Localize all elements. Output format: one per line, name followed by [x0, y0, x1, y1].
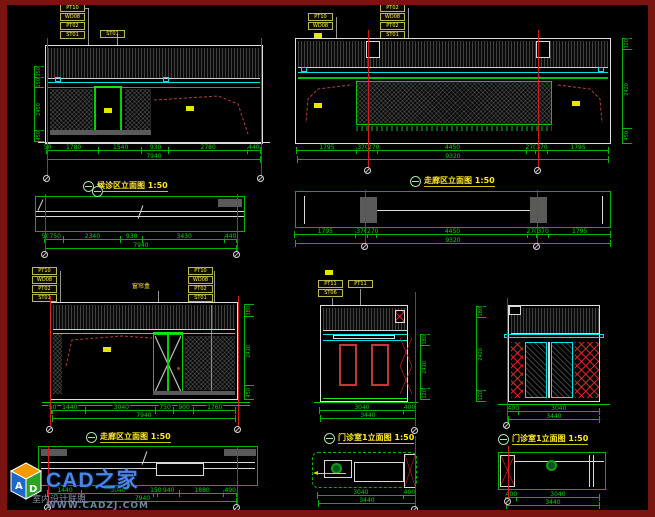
watermark-url: WWW.CADZJ.COM	[46, 501, 149, 511]
wall-line	[377, 210, 530, 211]
swing-arrow	[316, 473, 346, 474]
elevation-frame	[320, 305, 408, 402]
finish-tag: PT02	[60, 22, 85, 30]
view-title: 门诊室1立面图 1:50	[324, 433, 414, 444]
grid-bubble	[46, 426, 53, 433]
mullion	[548, 342, 550, 398]
curtain-box-label: 窗帘盒	[132, 284, 150, 290]
vertical-dim-chain: 350 150 2450 450	[34, 66, 44, 142]
door-head	[94, 86, 122, 88]
end-cap	[304, 196, 305, 224]
dim-total: 3440	[506, 502, 600, 509]
curtain-dashed-outline	[554, 79, 608, 125]
floor-line	[38, 142, 270, 143]
grid-bubble	[234, 426, 241, 433]
grid-bubble	[41, 251, 48, 258]
finish-tag: PT02	[188, 285, 213, 293]
finish-tag: PT02	[380, 4, 405, 12]
column-line	[593, 455, 594, 487]
grid-line	[237, 194, 238, 251]
finish-tag-stack: PT10 WD08 PT02 ST01	[188, 267, 213, 302]
finish-tag: PT10	[32, 267, 57, 275]
plant-symbol	[546, 460, 557, 471]
skirting-band	[50, 130, 151, 135]
grid-line	[415, 292, 416, 426]
view-room1-plan-b: 400 3040 3440	[470, 448, 630, 510]
view-waiting-area-plan: 50 750 2340 930 3430 440 7940	[28, 192, 298, 264]
pier-hatch	[53, 334, 62, 394]
cad-drawing-canvas[interactable]: PT10 WD08 PT02 ST01 ST01	[0, 0, 655, 517]
plan-outline	[498, 452, 606, 490]
grid-line	[507, 298, 508, 422]
door-leaf-hatch	[551, 342, 573, 398]
dim-total: 7940	[47, 156, 261, 163]
ledge-trim	[323, 340, 407, 341]
curtain-dashed-outline	[300, 79, 354, 125]
dim-total: 3440	[318, 500, 416, 507]
side-panel-hatch	[575, 342, 599, 398]
shelf-detail	[333, 335, 395, 339]
finish-tag: PT11	[318, 280, 343, 288]
door-head	[153, 332, 183, 334]
cove-detail	[163, 77, 169, 82]
dim-total: 9320	[295, 240, 611, 247]
grid-line	[50, 296, 51, 426]
cove-detail	[301, 67, 307, 72]
swing-arrow-head	[313, 471, 318, 475]
canopy-trim	[504, 334, 604, 338]
finish-tag: WD08	[188, 276, 213, 284]
grid-bubble	[43, 175, 50, 182]
detail-bubble-icon	[324, 433, 335, 444]
label-blob	[104, 108, 112, 113]
skirting-dots	[356, 126, 552, 131]
finish-tag: PT10	[60, 4, 85, 12]
counter	[354, 462, 404, 482]
door-pocket-brace	[405, 455, 415, 486]
grid-line	[45, 194, 46, 251]
view-corridor-plan: 1795 370 270 4450 270 370 1795 9320	[292, 188, 648, 260]
finish-tag-stack: PT10 WD08	[308, 13, 333, 30]
pier-fill	[41, 449, 67, 456]
elevation-frame	[45, 45, 263, 144]
door-stile	[167, 335, 169, 393]
view-title: 走廊区立面图 1:50	[86, 432, 171, 443]
finish-tag: ST01	[188, 294, 213, 302]
detail-bubble-icon	[498, 434, 509, 445]
column-fill	[530, 197, 547, 223]
ceiling-hatch	[298, 41, 608, 68]
door-leaf-hatch	[525, 342, 547, 398]
view-room1-plan-a: 3040 400 3440	[300, 448, 430, 514]
plan-outline	[295, 191, 611, 228]
wall-hatch	[185, 336, 235, 390]
curtain-dashed-outline	[152, 90, 260, 136]
view-title: 走廊区立面图 1:50	[410, 176, 495, 187]
door-jamb	[120, 86, 122, 132]
side-panel-hatch	[511, 342, 523, 398]
watermark: A D CAD之家 室内设计联盟 WWW.CADZJ.COM	[8, 456, 178, 516]
view-corridor2-elevation: PT10 WD08 PT02 ST01 PT10 WD08 PT02 ST01 …	[28, 264, 288, 447]
grid-bubble	[361, 243, 368, 250]
ceiling-hatch	[48, 48, 260, 79]
column-fill	[360, 197, 377, 223]
door-panel	[339, 344, 357, 386]
door-jamb	[94, 86, 96, 132]
grid-line	[365, 190, 366, 243]
grid-bubble	[233, 251, 240, 258]
finish-tag-stack: PT10 WD08 PT02 ST01	[32, 267, 57, 302]
finish-tag: PT10	[188, 267, 213, 275]
grid-bubble	[364, 167, 371, 174]
leader-line	[85, 8, 89, 9]
wall-panel-hatch	[356, 81, 552, 125]
pier-fill	[218, 199, 242, 207]
end-detail	[38, 199, 44, 210]
finish-tag: PT02	[32, 285, 57, 293]
vertical-dim-chain: 180 2420 120	[420, 334, 430, 400]
grid-line	[238, 296, 239, 426]
label-blob	[572, 101, 580, 106]
wall-hatch	[125, 89, 151, 131]
view-room1-elevation-b: 180 2420 120 400 3040 3440 门诊室1立面图 1:50	[470, 278, 648, 448]
tag-leader-through	[211, 305, 212, 391]
ground-line	[314, 402, 418, 403]
vertical-dim-chain: 320 2420 450	[622, 38, 632, 144]
base-line	[323, 398, 407, 399]
finish-tag: ST06	[318, 289, 343, 297]
label-blob	[314, 103, 322, 108]
view-corridor-elevation: PT10 WD08 PT02 WD08 PT02 ST01	[292, 2, 648, 192]
finish-tag: ST01	[32, 294, 57, 302]
grid-bubble	[233, 504, 240, 511]
finish-tag: PT11	[348, 280, 373, 288]
finish-tag: WD08	[308, 22, 333, 30]
end-cap	[602, 196, 603, 224]
column-line	[589, 455, 590, 487]
grid-line	[368, 30, 369, 168]
elevation-frame	[50, 302, 238, 400]
detail-bubble-icon	[86, 432, 97, 443]
wall-line	[36, 216, 244, 217]
cove-detail	[598, 67, 604, 72]
grid-bubble	[504, 498, 511, 505]
dim-total: 3440	[320, 415, 416, 422]
ceiling-hatch	[511, 308, 599, 334]
grid-bubble	[257, 175, 264, 182]
ceiling-trim	[48, 82, 260, 83]
view-title: 门诊室1立面图 1:50	[498, 434, 588, 445]
dim-total: 9320	[297, 156, 609, 163]
skirting-band	[153, 391, 235, 395]
plan-outline	[35, 196, 245, 232]
finish-tag-stack: PT11 ST06	[318, 280, 343, 297]
vertical-dim-chain: 380 2420 450	[244, 304, 254, 400]
vertical-dim-chain: 180 2420 120	[476, 306, 486, 402]
grid-bubble	[503, 422, 510, 429]
dim-total: 3440	[508, 416, 600, 423]
wall-hatch	[50, 89, 93, 131]
elevation-frame	[508, 305, 600, 402]
grid-line	[237, 446, 238, 504]
door-handle	[177, 367, 180, 370]
ceiling-hatch	[53, 305, 235, 330]
grid-bubble	[533, 243, 540, 250]
label-blob	[103, 347, 111, 352]
side-brace	[400, 338, 412, 366]
pier-fill	[224, 449, 256, 456]
detail-bubble-icon	[410, 176, 421, 187]
label-blob	[325, 270, 333, 275]
corner-notch-hatch	[395, 310, 405, 323]
curtain-dashed-outline	[62, 332, 154, 394]
door-panel	[371, 344, 389, 386]
grid-line	[538, 30, 539, 168]
finish-tag: ST01	[60, 31, 85, 39]
finish-tag: WD08	[60, 13, 85, 21]
dim-total: 7940	[45, 245, 237, 252]
label-blob	[186, 106, 194, 111]
side-brace	[400, 366, 412, 394]
grid-line	[508, 446, 509, 498]
watermark-brand: CAD之家	[46, 464, 139, 494]
ceiling-trim	[298, 72, 608, 73]
view-room1-elevation-a: PT11 ST06 PT11 180 2420 120 3040 400 344	[300, 264, 450, 447]
finish-tag: WD08	[380, 13, 405, 21]
ground-line	[42, 402, 250, 403]
grid-line	[261, 38, 262, 176]
svg-text:A: A	[15, 481, 23, 492]
finish-tag-stack: PT10 WD08 PT02 ST01	[60, 4, 85, 39]
dim-total: 7940	[52, 415, 236, 422]
finish-tag: PT10	[308, 13, 333, 21]
detail-bubble	[92, 186, 103, 197]
door	[153, 334, 183, 394]
view-waiting-area-elevation: PT10 WD08 PT02 ST01 ST01	[28, 2, 288, 194]
finish-tag-stack: PT02 WD08 PT02 ST01	[380, 4, 405, 39]
grid-bubble	[411, 506, 418, 513]
grid-bubble	[534, 167, 541, 174]
finish-tag: WD08	[32, 276, 57, 284]
grid-line	[47, 38, 48, 176]
cove-detail	[55, 77, 61, 82]
grid-line	[537, 190, 538, 243]
finish-tag: PT02	[380, 22, 405, 30]
grid-line	[415, 436, 416, 506]
header-line	[48, 87, 260, 88]
finish-tag: ST01	[100, 30, 125, 38]
elevation-frame	[295, 38, 611, 144]
corner-notch	[509, 306, 521, 315]
